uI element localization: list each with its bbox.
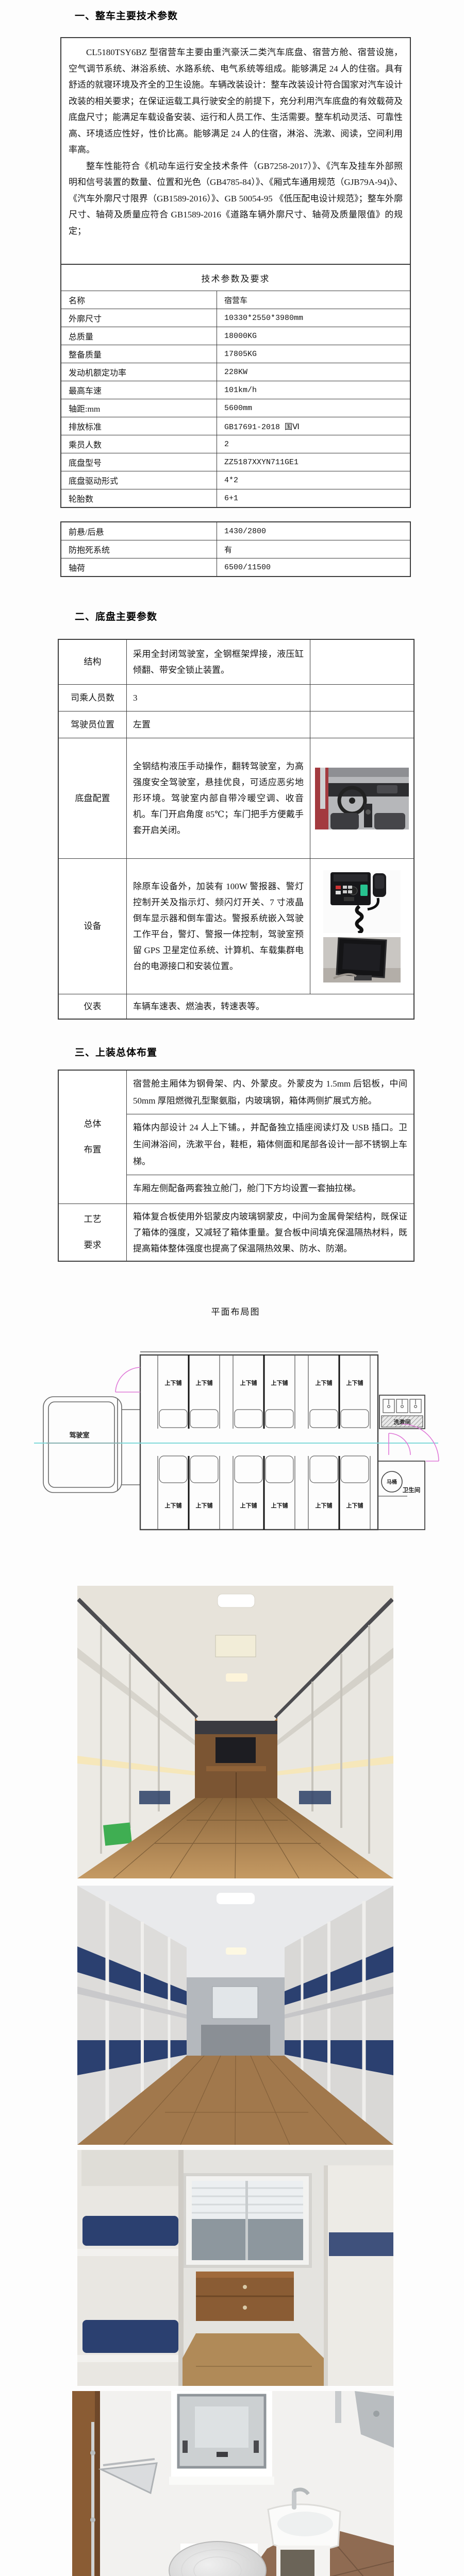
table-row: 结构 采用全封闭驾驶室，全钢框架焊接，液压缸倾翻、带安全锁止装置。 xyxy=(59,640,413,684)
table-row: 整备质量17805KG xyxy=(61,345,410,363)
row-label-line: 布置 xyxy=(84,1142,102,1158)
berth-label: 上下铺 xyxy=(271,1502,288,1509)
berth-label: 上下铺 xyxy=(196,1379,213,1386)
spec-document-page: 一、整车主要技术参数 CL5180TSY6BZ 型宿营车主要由重汽豪沃二类汽车底… xyxy=(0,0,464,2576)
body-layout-table: 总体 布置 宿营舱主厢体为钢骨架、内、外蒙皮。外蒙皮为 1.5mm 后铝板，中间… xyxy=(58,1070,415,1262)
bathroom-label: 卫生间 xyxy=(403,1486,421,1494)
berth-label: 上下铺 xyxy=(240,1502,257,1509)
row-label: 仪表 xyxy=(59,994,126,1019)
param-label: 轴距:mm xyxy=(61,399,217,417)
cab-label: 驾驶室 xyxy=(69,1431,89,1439)
row-label: 结构 xyxy=(59,640,126,684)
row-text-stack: 宿营舱主厢体为钢骨架、内、外蒙皮。外蒙皮为 1.5mm 后铝板，中间 50mm … xyxy=(126,1071,413,1204)
table-row: 名称宿营车 xyxy=(61,291,410,309)
table-row: 外廓尺寸10330*2550*3980mm xyxy=(61,309,410,327)
toilet-label: 马桶 xyxy=(387,1479,397,1485)
photo-blue-bunk-corridor xyxy=(77,1886,393,2145)
param-value: 1430/2800 xyxy=(217,522,410,540)
row-image-cell xyxy=(310,711,413,738)
param-label: 发动机额定功率 xyxy=(61,363,217,381)
bathroom-annex: 马桶 卫生间 xyxy=(378,1461,425,1530)
row-text: 宿营舱主厢体为钢骨架、内、外蒙皮。外蒙皮为 1.5mm 后铝板，中间 50mm … xyxy=(127,1071,413,1114)
table-row: 底盘驱动形式4*2 xyxy=(61,471,410,489)
cab-outline xyxy=(43,1397,140,1493)
floorplan-diagram: 驾驶室 上下铺 上下铺 上下铺 上下铺 上下铺 上下铺 xyxy=(26,1332,443,1534)
row-text: 箱体内部设计 24 人上下铺。，并配备独立插座阅读灯及 USB 插口。卫生间淋浴… xyxy=(127,1114,413,1175)
table-row: 轴荷6500/11500 xyxy=(61,558,410,576)
param-value: 10330*2550*3980mm xyxy=(217,309,410,327)
table-row: 防抱死系统有 xyxy=(61,540,410,558)
sink-units xyxy=(383,1399,421,1413)
param-value: ZZ5187XXYN711GE1 xyxy=(217,453,410,471)
berth-label: 上下铺 xyxy=(346,1502,363,1509)
section1-title: 一、整车主要技术参数 xyxy=(75,8,178,22)
param-value: 17805KG xyxy=(217,345,410,363)
row-label-line: 总体 xyxy=(84,1116,102,1132)
row-image-cell xyxy=(310,859,413,994)
row-image-cell xyxy=(310,738,413,858)
row-label: 设备 xyxy=(59,859,126,994)
param-value: 4*2 xyxy=(217,471,410,489)
intro-paragraphs: CL5180TSY6BZ 型宿营车主要由重汽豪沃二类汽车底盘、宿营方舱、宿营设施… xyxy=(61,38,410,264)
intro-paragraph-2: 整车性能符合《机动车运行安全技术条件（GB7258-2017）》、《汽车及挂车外… xyxy=(69,158,403,240)
param-label: 最高车速 xyxy=(61,381,217,399)
param-value: 6+1 xyxy=(217,489,410,507)
row-text: 箱体复合板使用外铝蒙皮内玻璃钢蒙皮，中间为金属骨架结构，既保证了箱体的强度，又减… xyxy=(126,1204,413,1261)
param-label: 乘员人数 xyxy=(61,435,217,453)
row-label: 驾驶员位置 xyxy=(59,711,126,738)
param-value: 101km/h xyxy=(217,381,410,399)
param-value: 228KW xyxy=(217,363,410,381)
berth-label: 上下铺 xyxy=(240,1379,257,1386)
berth-thick-dividers-bottom xyxy=(189,1456,339,1530)
table-row: 司乘人员数 3 xyxy=(59,684,413,711)
monitor-photo xyxy=(323,937,401,982)
table-row: 底盘型号ZZ5187XXYN711GE1 xyxy=(61,453,410,471)
table-row: 总质量18000KG xyxy=(61,327,410,345)
param-label: 前悬/后悬 xyxy=(61,522,217,540)
table-row: 总体 布置 宿营舱主厢体为钢骨架、内、外蒙皮。外蒙皮为 1.5mm 后铝板，中间… xyxy=(59,1071,413,1204)
table-row: 轴距:mm5600mm xyxy=(61,399,410,417)
row-text: 车厢左侧配备两套独立舱门，舱门下方均设置一套抽拉梯。 xyxy=(127,1175,413,1204)
table-row: 底盘配置 全钢结构液压手动操作，翻转驾驶室，为高强度安全驾驶室，悬挂优良，可适应… xyxy=(59,738,413,858)
param-value: 18000KG xyxy=(217,327,410,345)
param-label: 防抱死系统 xyxy=(61,540,217,558)
row-text: 除原车设备外，加装有 100W 警报器、警灯控制开关及指示灯、频闪灯开关、7 寸… xyxy=(126,859,310,994)
siren-control-unit-photo xyxy=(323,870,401,933)
param-value: 5600mm xyxy=(217,399,410,417)
table-row: 前悬/后悬1430/2800 xyxy=(61,522,410,540)
table-row: 最高车速101km/h xyxy=(61,381,410,399)
table-row: 设备 除原车设备外，加装有 100W 警报器、警灯控制开关及指示灯、频闪灯开关、… xyxy=(59,858,413,994)
floorplan-title: 平面布局图 xyxy=(60,1304,411,1317)
section2-title: 二、底盘主要参数 xyxy=(75,609,157,623)
berth-thick-dividers-top xyxy=(189,1355,339,1429)
berth-label: 上下铺 xyxy=(316,1502,333,1509)
berth-label: 上下铺 xyxy=(165,1502,182,1509)
berth-label: 上下铺 xyxy=(196,1502,213,1509)
chassis-parameters-table: 结构 采用全封闭驾驶室，全钢框架焊接，液压缸倾翻、带安全锁止装置。 司乘人员数 … xyxy=(58,639,415,1020)
row-text: 左置 xyxy=(126,711,310,738)
berth-label: 上下铺 xyxy=(271,1379,288,1386)
table-row: 工艺 要求 箱体复合板使用外铝蒙皮内玻璃钢蒙皮，中间为金属骨架结构，既保证了箱体… xyxy=(59,1204,413,1261)
table-row: 仪表 车辆车速表、燃油表，转速表等。 xyxy=(59,994,413,1019)
row-label-line: 要求 xyxy=(84,1238,102,1253)
table-row: 轮胎数6+1 xyxy=(61,489,410,507)
technical-parameters-table: CL5180TSY6BZ 型宿营车主要由重汽豪沃二类汽车底盘、宿营方舱、宿营设施… xyxy=(60,37,411,508)
photo-bathroom-interior xyxy=(72,2391,394,2576)
param-value: 有 xyxy=(217,540,410,558)
param-label: 底盘驱动形式 xyxy=(61,471,217,489)
row-image-cell xyxy=(310,685,413,711)
param-value: GB17691-2018 国Ⅵ xyxy=(217,417,410,435)
param-value: 2 xyxy=(217,435,410,453)
berth-label: 上下铺 xyxy=(316,1379,333,1386)
table-row: 发动机额定功率228KW xyxy=(61,363,410,381)
row-label: 底盘配置 xyxy=(59,738,126,858)
section3-title: 三、上装总体布置 xyxy=(75,1045,157,1059)
row-text: 全钢结构液压手动操作，翻转驾驶室，为高强度安全驾驶室，悬挂优良，可适应恶劣地形环… xyxy=(126,738,310,858)
param-label: 排放标准 xyxy=(61,417,217,435)
intro-paragraph-1: CL5180TSY6BZ 型宿营车主要由重汽豪沃二类汽车底盘、宿营方舱、宿营设施… xyxy=(69,44,403,158)
param-label: 整备质量 xyxy=(61,345,217,363)
berth-label: 上下铺 xyxy=(346,1379,363,1386)
param-value: 宿营车 xyxy=(217,291,410,309)
berth-label: 上下铺 xyxy=(165,1379,182,1386)
param-label: 底盘型号 xyxy=(61,453,217,471)
row-text: 3 xyxy=(126,685,310,711)
param-label: 轮胎数 xyxy=(61,489,217,507)
photo-corridor-bunk-interior xyxy=(77,1586,393,1878)
param-value: 6500/11500 xyxy=(217,558,410,576)
row-text: 采用全封闭驾驶室，全钢框架焊接，液压缸倾翻、带安全锁止装置。 xyxy=(126,640,310,684)
param-label: 名称 xyxy=(61,291,217,309)
table-row: 乘员人数2 xyxy=(61,435,410,453)
row-label-line: 工艺 xyxy=(84,1212,102,1227)
row-label: 总体 布置 xyxy=(59,1071,126,1204)
row-label: 司乘人员数 xyxy=(59,685,126,711)
row-label: 工艺 要求 xyxy=(59,1204,126,1261)
photo-bunk-beds-and-window xyxy=(77,2150,393,2386)
cab-interior-photo xyxy=(315,768,409,829)
row-text: 车辆车速表、燃油表，转速表等。 xyxy=(126,994,413,1019)
row-image-cell xyxy=(310,640,413,684)
param-label: 轴荷 xyxy=(61,558,217,576)
table-title: 技术参数及要求 xyxy=(61,264,410,291)
suspension-parameters-table: 前悬/后悬1430/2800 防抱死系统有 轴荷6500/11500 xyxy=(60,521,411,577)
param-label: 总质量 xyxy=(61,327,217,345)
table-row: 排放标准GB17691-2018 国Ⅵ xyxy=(61,417,410,435)
table-row: 驾驶员位置 左置 xyxy=(59,711,413,738)
param-label: 外廓尺寸 xyxy=(61,309,217,327)
